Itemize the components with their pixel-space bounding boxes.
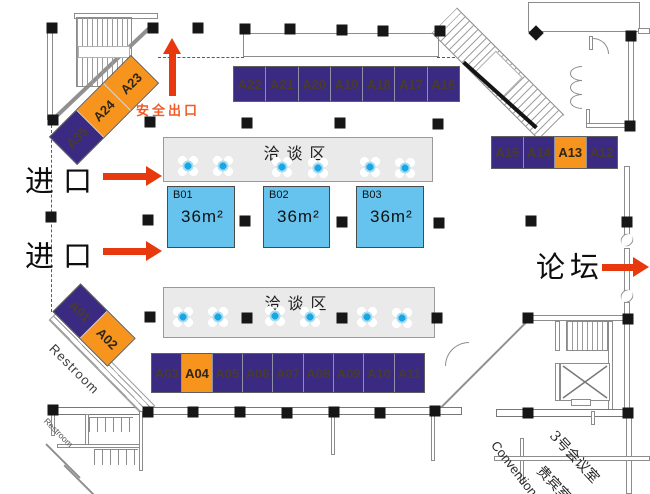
- booth-A10[interactable]: A10: [364, 354, 394, 392]
- column-marker: [375, 408, 386, 419]
- negotiation-area-top-title: 洽谈区: [164, 140, 432, 164]
- column-marker: [240, 216, 251, 227]
- booth-A05[interactable]: A05: [213, 354, 243, 392]
- booth-A18[interactable]: A18: [363, 67, 395, 101]
- safety-exit-arrow: [169, 54, 176, 96]
- door-arc: [445, 342, 469, 366]
- column-marker: [622, 217, 633, 228]
- column-marker: [242, 313, 253, 324]
- door-arc: [593, 38, 609, 54]
- forum-arrow-head: [633, 257, 649, 277]
- diagonal-wall: [63, 464, 94, 494]
- convention-label: Convention: [488, 438, 540, 494]
- wall-bottom-right: [496, 409, 632, 417]
- column-marker: [335, 118, 346, 129]
- column-marker: [526, 216, 537, 227]
- table-seat-icon: [270, 155, 294, 179]
- stairs-landing: [78, 46, 130, 58]
- column-marker: [626, 31, 637, 42]
- booth-A19[interactable]: A19: [331, 67, 363, 101]
- column-marker: [378, 26, 389, 37]
- wall-break: [618, 287, 636, 305]
- column-marker: [625, 121, 636, 132]
- entrance-bottom-label: 进口: [25, 233, 101, 275]
- exhibition-floor-plan: 洽谈区 洽谈区 A22 A21 A20 A19 A18 A17 A16 A15 …: [0, 0, 650, 494]
- wall: [47, 24, 53, 120]
- wall: [626, 411, 632, 494]
- column-marker: [282, 408, 293, 419]
- column-marker: [337, 25, 348, 36]
- diagonal-wall: [45, 443, 80, 478]
- safety-exit-arrow-head: [163, 38, 181, 54]
- wall: [431, 415, 435, 461]
- wall: [591, 411, 595, 425]
- wall-break: [618, 231, 636, 249]
- booth-A20[interactable]: A20: [299, 67, 331, 101]
- forum-label: 论坛: [536, 244, 604, 286]
- table-seat-icon: [390, 306, 414, 330]
- entrance-bottom-arrow: [103, 248, 148, 255]
- column-marker: [623, 314, 634, 325]
- column-marker: [337, 313, 348, 324]
- column-marker: [432, 313, 443, 324]
- column-marker: [48, 115, 59, 126]
- table-seat-icon: [263, 304, 287, 328]
- booth-B03[interactable]: B03 36m²: [356, 186, 424, 248]
- booth-id: B02: [269, 189, 329, 201]
- column-marker: [435, 26, 446, 37]
- column-marker: [143, 407, 154, 418]
- curved-wall: [570, 80, 582, 95]
- forum-arrow: [602, 264, 635, 271]
- table-seat-icon: [206, 305, 230, 329]
- column-marker: [143, 215, 154, 226]
- booth-A21[interactable]: A21: [266, 67, 298, 101]
- entrance-bottom-arrow-head: [146, 241, 162, 261]
- column-marker: [523, 313, 534, 324]
- column-marker: [46, 212, 57, 223]
- table-seat-icon: [211, 154, 235, 178]
- booth-A17[interactable]: A17: [395, 67, 427, 101]
- column-marker: [329, 407, 340, 418]
- column-marker: [47, 23, 58, 34]
- elevator-x-icon: [561, 364, 609, 400]
- toilet-stalls: [94, 449, 138, 465]
- wall: [638, 28, 650, 34]
- booth-A11[interactable]: A11: [395, 354, 424, 392]
- table-seat-icon: [298, 305, 322, 329]
- safety-exit-label: 安全出口: [136, 100, 200, 119]
- curved-wall: [570, 94, 582, 109]
- booth-A14[interactable]: A14: [524, 137, 556, 168]
- stairs-bottom-right: [566, 321, 608, 351]
- column-marker: [242, 118, 253, 129]
- dashed-wall: [437, 57, 455, 58]
- wall: [628, 32, 634, 128]
- wall: [555, 321, 560, 351]
- booth-A03[interactable]: A03: [152, 354, 182, 392]
- table-seat-icon: [176, 154, 200, 178]
- column-marker: [433, 119, 444, 130]
- booth-B01[interactable]: B01 36m²: [167, 186, 235, 248]
- booth-A06[interactable]: A06: [243, 354, 273, 392]
- table-seat-icon: [355, 305, 379, 329]
- elevator-indicator: [571, 399, 591, 406]
- booth-area: 36m²: [181, 207, 234, 227]
- booth-A22[interactable]: A22: [234, 67, 266, 101]
- booth-area: 36m²: [277, 207, 329, 227]
- column-marker: [145, 312, 156, 323]
- table-seat-icon: [306, 156, 330, 180]
- toilet-stalls: [89, 417, 133, 432]
- entrance-top-arrow: [103, 173, 148, 180]
- entrance-top-arrow-head: [146, 166, 162, 186]
- elevator: [560, 363, 610, 401]
- booth-A16[interactable]: A16: [428, 67, 459, 101]
- column-marker: [148, 23, 159, 34]
- column-marker: [337, 217, 348, 228]
- table-seat-icon: [171, 305, 195, 329]
- corridor-top: [243, 33, 439, 57]
- booth-id: B03: [362, 189, 423, 201]
- room-top-right: [528, 2, 640, 32]
- column-marker: [434, 218, 445, 229]
- column-marker: [235, 407, 246, 418]
- column-marker: [48, 405, 59, 416]
- wall: [331, 415, 335, 455]
- entrance-top-label: 进口: [25, 158, 101, 200]
- column-marker: [430, 406, 441, 417]
- booth-A13[interactable]: A13: [555, 137, 587, 168]
- booth-id: B01: [173, 189, 234, 201]
- column-marker: [623, 408, 634, 419]
- column-marker: [193, 23, 204, 34]
- booth-row-right: A15 A14 A13 A12: [491, 136, 618, 169]
- booth-A08[interactable]: A08: [304, 354, 334, 392]
- booth-A15[interactable]: A15: [492, 137, 524, 168]
- table-seat-icon: [358, 155, 382, 179]
- table-seat-icon: [393, 156, 417, 180]
- column-marker: [240, 24, 251, 35]
- curved-wall: [570, 66, 582, 81]
- booth-row-top: A22 A21 A20 A19 A18 A17 A16: [233, 66, 460, 102]
- booth-A07[interactable]: A07: [273, 354, 303, 392]
- booth-A12[interactable]: A12: [587, 137, 618, 168]
- column-marker: [285, 24, 296, 35]
- booth-A04[interactable]: A04: [182, 354, 212, 392]
- booth-B02[interactable]: B02 36m²: [263, 186, 330, 248]
- column-marker: [523, 408, 534, 419]
- column-marker: [188, 407, 199, 418]
- booth-row-bottom: A03 A04 A05 A06 A07 A08 A09 A10 A11: [151, 353, 425, 393]
- booth-A09[interactable]: A09: [334, 354, 364, 392]
- booth-area: 36m²: [370, 207, 423, 227]
- wall: [139, 411, 143, 471]
